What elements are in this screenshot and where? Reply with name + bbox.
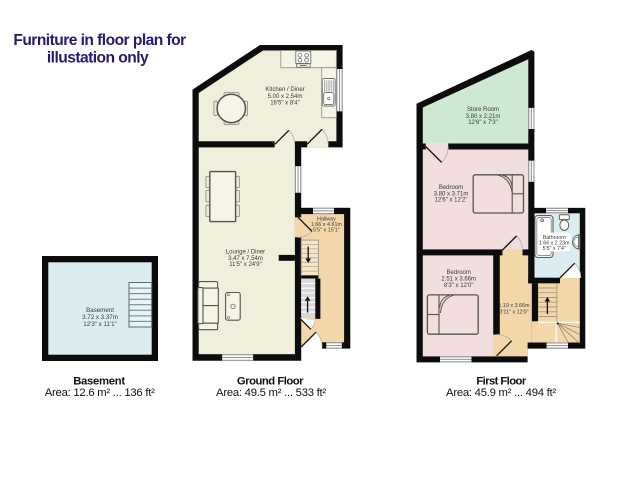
svg-text:12'3" x 11'1": 12'3" x 11'1" [83, 321, 116, 328]
svg-text:illustation only: illustation only [47, 50, 149, 67]
svg-text:Bedroom: Bedroom [439, 185, 463, 191]
svg-text:5'5" x 7'4": 5'5" x 7'4" [543, 246, 566, 252]
svg-text:11'5" x 24'9": 11'5" x 24'9" [229, 262, 261, 268]
svg-text:5.00 x 2.54m: 5.00 x 2.54m [268, 94, 303, 100]
svg-text:12'6" x 7'3": 12'6" x 7'3" [468, 120, 498, 126]
svg-text:Ground Floor: Ground Floor [237, 375, 304, 387]
svg-text:Store Room: Store Room [467, 107, 499, 113]
svg-text:12'6" x 12'2": 12'6" x 12'2" [435, 198, 468, 204]
svg-text:1.19 x 3.66m: 1.19 x 3.66m [498, 303, 530, 309]
svg-text:Area: 45.9 m² ... 494 ft²: Area: 45.9 m² ... 494 ft² [446, 387, 556, 399]
svg-text:3.47 x 7.54m: 3.47 x 7.54m [228, 256, 263, 262]
svg-text:Lounge / Diner: Lounge / Diner [226, 249, 265, 255]
svg-text:Area: 49.5 m² ... 533 ft²: Area: 49.5 m² ... 533 ft² [216, 387, 326, 399]
svg-text:Bedroom: Bedroom [447, 270, 471, 276]
svg-text:3.80 x 2.21m: 3.80 x 2.21m [466, 114, 501, 120]
svg-text:Basement: Basement [86, 307, 114, 314]
svg-text:Kitchen / Diner: Kitchen / Diner [265, 87, 304, 93]
svg-text:16'5" x 8'4": 16'5" x 8'4" [270, 100, 300, 106]
svg-text:2.51 x 3.66m: 2.51 x 3.66m [441, 277, 476, 283]
svg-text:Area: 12.6 m² ... 136 ft²: Area: 12.6 m² ... 136 ft² [45, 387, 155, 399]
svg-text:5'5" x 15'1": 5'5" x 15'1" [313, 228, 340, 234]
svg-text:3'11" x 12'0": 3'11" x 12'0" [499, 309, 528, 315]
svg-text:Basement: Basement [73, 375, 125, 387]
svg-text:Furniture in floor plan for: Furniture in floor plan for [13, 32, 186, 49]
svg-text:8'3" x 12'0": 8'3" x 12'0" [444, 283, 474, 289]
svg-text:First Floor: First Floor [476, 375, 526, 387]
